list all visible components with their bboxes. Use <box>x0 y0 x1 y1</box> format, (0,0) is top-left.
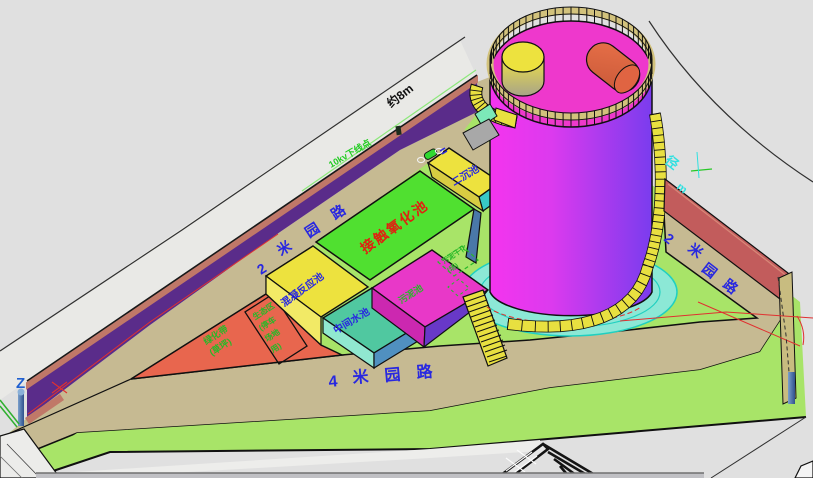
svg-text:4: 4 <box>328 373 338 391</box>
svg-text:路: 路 <box>416 362 435 382</box>
svg-text:米: 米 <box>352 367 371 387</box>
svg-text:Z: Z <box>16 375 25 392</box>
svg-text:园: 园 <box>384 366 402 385</box>
